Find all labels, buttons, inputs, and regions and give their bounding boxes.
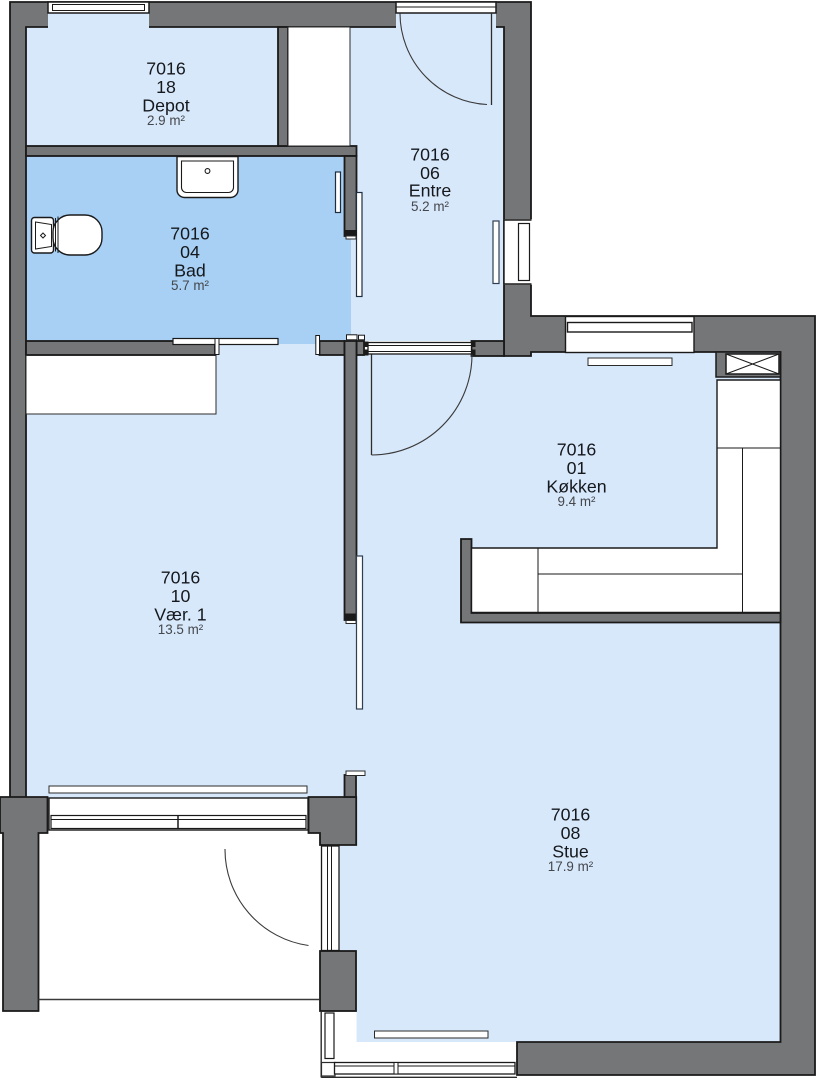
svg-text:2.9 m²: 2.9 m² bbox=[147, 113, 185, 128]
svg-text:04: 04 bbox=[180, 242, 200, 262]
svg-text:7016: 7016 bbox=[170, 224, 210, 244]
svg-text:7016: 7016 bbox=[161, 568, 201, 588]
svg-text:17.9 m²: 17.9 m² bbox=[548, 859, 594, 874]
svg-text:10: 10 bbox=[171, 586, 191, 606]
svg-text:01: 01 bbox=[567, 458, 587, 478]
svg-text:7016: 7016 bbox=[146, 58, 186, 78]
svg-text:9.4 m²: 9.4 m² bbox=[558, 494, 596, 509]
svg-text:13.5 m²: 13.5 m² bbox=[158, 622, 204, 637]
svg-text:Entre: Entre bbox=[409, 181, 452, 201]
svg-text:7016: 7016 bbox=[410, 144, 450, 164]
svg-text:08: 08 bbox=[561, 823, 581, 843]
svg-text:18: 18 bbox=[156, 77, 176, 97]
svg-text:5.2 m²: 5.2 m² bbox=[411, 199, 449, 214]
svg-text:5.7 m²: 5.7 m² bbox=[171, 278, 209, 293]
svg-text:7016: 7016 bbox=[551, 805, 591, 825]
svg-text:7016: 7016 bbox=[557, 440, 597, 460]
